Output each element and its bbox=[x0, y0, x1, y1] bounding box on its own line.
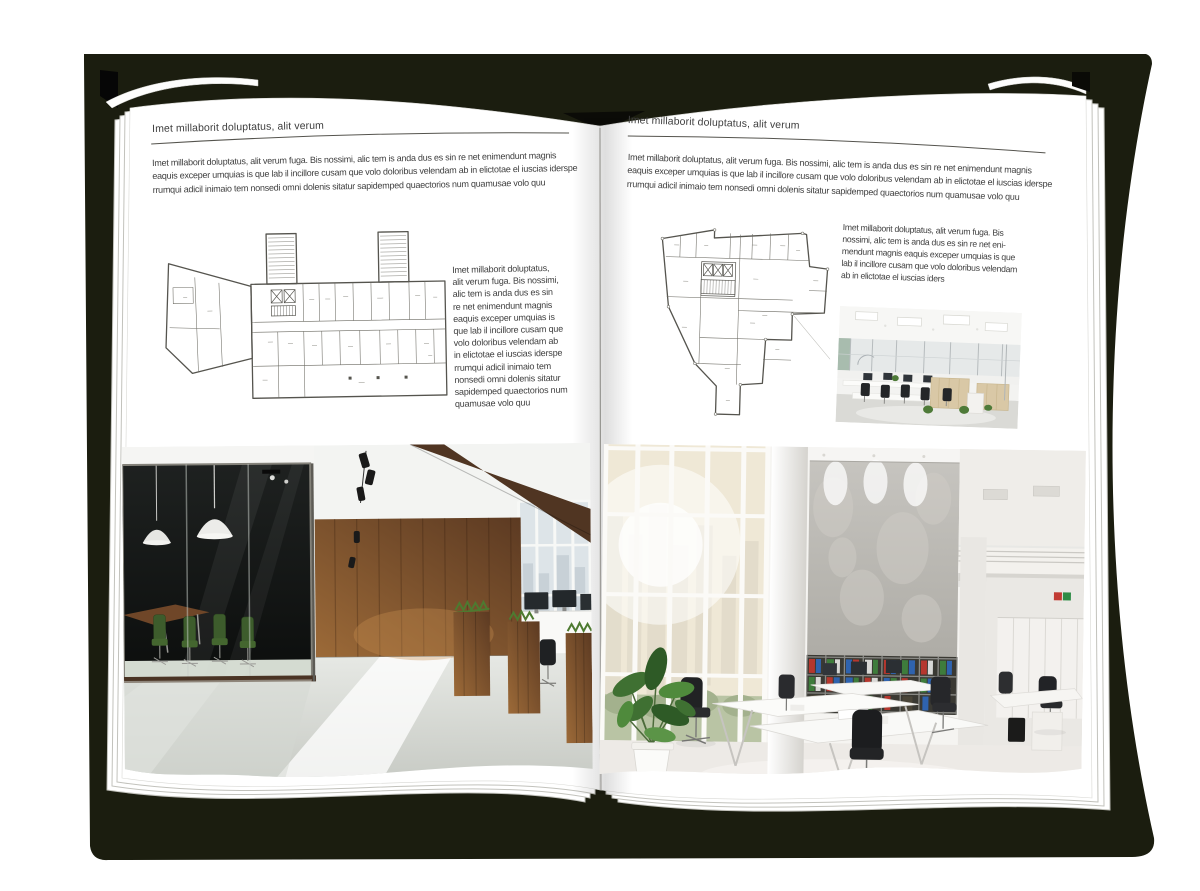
monitor bbox=[580, 594, 591, 610]
floor-reflection bbox=[124, 679, 313, 781]
left-page-photo bbox=[122, 443, 593, 781]
wood-wall bbox=[315, 518, 522, 662]
monitor bbox=[823, 663, 837, 675]
stair-hatching bbox=[268, 236, 407, 278]
elevator-core bbox=[701, 262, 736, 297]
monitor bbox=[524, 592, 548, 609]
black-bin bbox=[1008, 718, 1025, 742]
left-page-intro: Imet millaborit doluptatus, alit verum f… bbox=[152, 149, 578, 197]
concrete-feature-wall bbox=[807, 459, 960, 659]
white-pedestal bbox=[967, 393, 984, 414]
right-page-photo-small bbox=[836, 306, 1022, 429]
first-aid-sign bbox=[1063, 592, 1071, 600]
glass-meeting-room bbox=[122, 445, 316, 683]
monitor bbox=[552, 590, 576, 607]
right-page-side-paragraph: Imet millaborit doluptatus, alit verum f… bbox=[841, 221, 1019, 288]
brochure-spread-mockup: Imet millaborit doluptatus, alit verum I… bbox=[0, 0, 1200, 891]
structural-columns bbox=[349, 376, 408, 380]
plan-partitions bbox=[169, 273, 447, 400]
wall-columns bbox=[656, 227, 830, 418]
monitor bbox=[851, 661, 867, 674]
monitor bbox=[886, 660, 902, 673]
first-aid-sign bbox=[1054, 592, 1062, 600]
plan-outline bbox=[164, 231, 447, 400]
room-labels bbox=[670, 243, 819, 403]
right-page-photo-large bbox=[599, 444, 1086, 795]
floor-plan-left bbox=[156, 227, 451, 418]
white-pot bbox=[633, 749, 669, 784]
plan-outline bbox=[658, 228, 829, 417]
elevator-core bbox=[271, 290, 295, 316]
side-line: quamusae volo quu bbox=[455, 396, 568, 411]
floor-plan-right bbox=[639, 216, 835, 421]
plan-partitions bbox=[662, 231, 828, 387]
left-page-side-paragraph: Imet millaborit doluptatus, alit verum f… bbox=[452, 262, 568, 411]
papers bbox=[790, 705, 804, 711]
downlight-glows bbox=[823, 459, 928, 506]
white-column-rear bbox=[958, 537, 987, 745]
boundary-line bbox=[793, 316, 831, 359]
